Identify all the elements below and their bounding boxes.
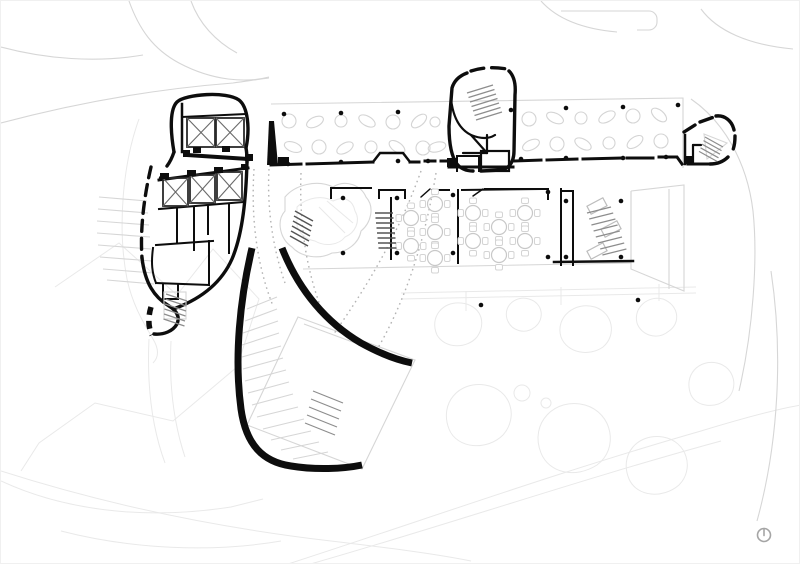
shaft-x-boxes (163, 118, 244, 206)
middle-band-building (303, 188, 633, 273)
parking-lot (247, 317, 415, 469)
middle-column-dots (341, 190, 624, 260)
north-arrow-icon (758, 529, 771, 542)
site-plan-canvas (0, 0, 800, 564)
table-symbols (396, 189, 540, 273)
context-roads (1, 1, 793, 521)
landscape-mound (280, 183, 371, 256)
canopy-column-dots (282, 103, 681, 308)
top-pod-building (449, 68, 515, 171)
site-plan-drawing (1, 1, 800, 564)
